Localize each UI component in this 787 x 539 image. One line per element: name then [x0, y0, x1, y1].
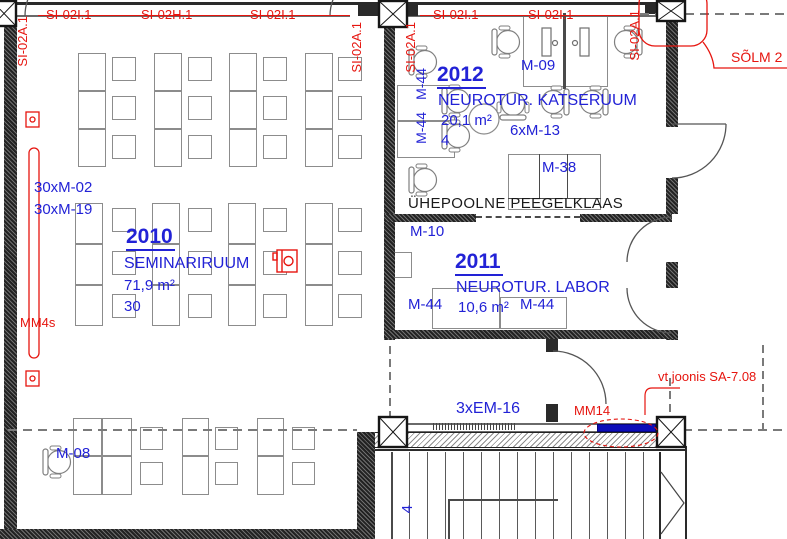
floor-plan-canvas: SI-02I.1 SI-02H.1 SI-02I.1 SI-02I.1 SI-0…: [0, 0, 787, 539]
wall-bottom-left: [0, 529, 362, 539]
desk: [102, 418, 132, 456]
desk-divider: [563, 13, 566, 89]
room-capacity-katseruum: 4: [441, 133, 449, 149]
room-number-2010: 2010: [126, 226, 175, 251]
door-post: [546, 404, 558, 422]
room-area-katseruum: 20,1 m²: [441, 113, 492, 129]
workstation-desk: [523, 15, 565, 87]
room-area-labor: 10,6 m²: [458, 300, 509, 316]
desk: [78, 53, 106, 91]
keynote-tag-vertical: SI-02A.1: [628, 10, 642, 61]
room-area-seminar: 71,9 m²: [124, 278, 175, 294]
keynote-tag-vertical: SI-02A.1: [404, 22, 418, 73]
desk: [305, 53, 333, 91]
chair-square: [263, 208, 287, 232]
chair-square: [263, 251, 287, 275]
chair-square: [263, 294, 287, 318]
vt-joonis-label: vt joonis SA-7.08: [658, 370, 756, 384]
desk: [78, 129, 106, 167]
desk: [228, 203, 256, 244]
tag-30xM-19: 30xM-19: [34, 202, 92, 218]
wall-mirror-left: [384, 214, 476, 222]
chair-square: [215, 462, 238, 485]
stair-tread: [553, 452, 554, 539]
desk: [182, 456, 209, 495]
keynote-tag: SI-02I.1: [250, 8, 296, 22]
desk: [182, 418, 209, 456]
chair-square: [263, 96, 287, 120]
chair-square: [188, 96, 212, 120]
desk: [229, 53, 257, 91]
chair-square: [338, 135, 362, 159]
stair-tread: [463, 452, 464, 539]
keynote-tag: SI-02I.1: [528, 8, 574, 22]
gridline-top-right: [640, 13, 787, 15]
desk: [154, 91, 182, 129]
gridline-vertical: [762, 345, 764, 431]
stair-tread: [535, 452, 536, 539]
keynote-tag: SI-02I.1: [433, 8, 479, 22]
keynote-tag-vertical: SI-02A.1: [350, 22, 364, 73]
tag-M-44-left: M-44: [408, 297, 442, 313]
stair-tread: [607, 452, 608, 539]
room-number-2011: 2011: [455, 251, 503, 276]
stair-tread: [625, 452, 626, 539]
solm-callout-label: SÕLM 2: [731, 50, 782, 65]
stair-tread: [643, 452, 644, 539]
tag-M-08: M-08: [56, 446, 90, 462]
desk: [305, 203, 333, 244]
stair-top-wall: [375, 449, 686, 451]
keynote-tag: SI-02H.1: [141, 8, 192, 22]
desk: [305, 129, 333, 167]
vt-joonis-leader: [645, 388, 680, 415]
desk: [257, 418, 284, 456]
highlighted-element-mm14: [597, 424, 656, 432]
chair-square: [112, 96, 136, 120]
stair-tread: [589, 452, 590, 539]
stair-tread: [409, 452, 410, 539]
wall-vertical-stair-left: [357, 432, 375, 539]
wall-left: [4, 0, 17, 529]
radiator-grille: [433, 423, 515, 430]
tag-M-44-vertical: M-44: [414, 112, 429, 144]
wall-mid-vertical: [384, 18, 395, 340]
tag-30xM-02: 30xM-02: [34, 180, 92, 196]
wall-mirror-right: [580, 214, 672, 222]
cabinet-divider: [539, 154, 540, 198]
stair-tread: [517, 452, 518, 539]
chair-square: [188, 135, 212, 159]
one-way-mirror-glass: [476, 216, 580, 218]
corridor-wall-hatch: [357, 432, 685, 448]
chair-square: [338, 208, 362, 232]
room-name-seminar: SEMINARIRUUM: [124, 256, 249, 273]
desk: [257, 456, 284, 495]
chair-square: [338, 251, 362, 275]
desk: [228, 285, 256, 326]
desk: [75, 244, 103, 285]
chair-square: [263, 135, 287, 159]
workstation-desk: [565, 15, 608, 87]
centerline-horizontal: [8, 429, 357, 431]
wall-right-2012: [666, 16, 678, 127]
chair-square: [338, 294, 362, 318]
gridline-vertical: [669, 378, 671, 418]
chair-square: [140, 462, 163, 485]
tag-M-10: M-10: [410, 224, 444, 240]
chair-icon: [492, 26, 520, 58]
tag-M-44-vertical: M-44: [414, 68, 429, 100]
chair-square: [188, 294, 212, 318]
chair-square: [263, 57, 287, 81]
gridline-vertical: [389, 346, 391, 420]
mm14-label: MM14: [574, 404, 610, 418]
desk: [78, 91, 106, 129]
desk: [229, 91, 257, 129]
stair-handrail: [448, 499, 450, 539]
room-number-2012: 2012: [437, 64, 486, 89]
chair-icon: [409, 164, 437, 196]
stair-right-wall-outer: [685, 446, 687, 539]
wall-stub: [408, 3, 418, 16]
chair-square: [338, 96, 362, 120]
desk: [154, 129, 182, 167]
desk: [75, 285, 103, 326]
centerline-horizontal: [683, 429, 787, 431]
room-name-katseruum: NEUROTUR. KATSERUUM: [438, 93, 637, 110]
stair-tread: [445, 452, 446, 539]
mirror-note: ÜHEPOOLNE PEEGELKLAAS: [408, 196, 623, 212]
stair-left-line: [391, 452, 393, 539]
tag-3xEM-16: 3xEM-16: [456, 401, 520, 418]
chair-square: [112, 135, 136, 159]
stair-mark: 4: [400, 505, 416, 513]
tag-6xM-13: 6xM-13: [510, 123, 560, 139]
desk: [305, 91, 333, 129]
chair-square: [188, 208, 212, 232]
wall-right-2011: [666, 262, 678, 288]
wall-top: [0, 2, 686, 5]
desk: [229, 129, 257, 167]
desk: [305, 285, 333, 326]
wall-2011-bottom: [384, 330, 678, 339]
mm4s-label: MM4s: [20, 316, 55, 330]
stair-tread: [481, 452, 482, 539]
chair-square: [112, 57, 136, 81]
stair-break-icon: [661, 472, 684, 534]
keynote-tag-vertical: SI-02A.1: [16, 16, 30, 67]
tag-M-38: M-38: [542, 160, 576, 176]
tag-M-44-right: M-44: [520, 297, 554, 313]
stair-handrail: [448, 499, 558, 501]
stair-tread: [499, 452, 500, 539]
desk: [102, 456, 132, 495]
desk: [154, 53, 182, 91]
wall-stub: [358, 3, 380, 16]
desk: [305, 244, 333, 285]
stair-right-wall: [659, 452, 661, 539]
chair-square: [188, 57, 212, 81]
mm4s-element: [26, 112, 39, 386]
room-name-labor: NEUROTUR. LABOR: [456, 280, 610, 297]
wall-right-stub: [666, 178, 678, 214]
keynote-tag: SI-02I.1: [46, 8, 92, 22]
tag-M-09: M-09: [521, 58, 555, 74]
chair-square: [292, 462, 315, 485]
room-capacity-seminar: 30: [124, 299, 141, 315]
stair-tread: [427, 452, 428, 539]
stair-tread: [571, 452, 572, 539]
door-post: [546, 339, 558, 352]
